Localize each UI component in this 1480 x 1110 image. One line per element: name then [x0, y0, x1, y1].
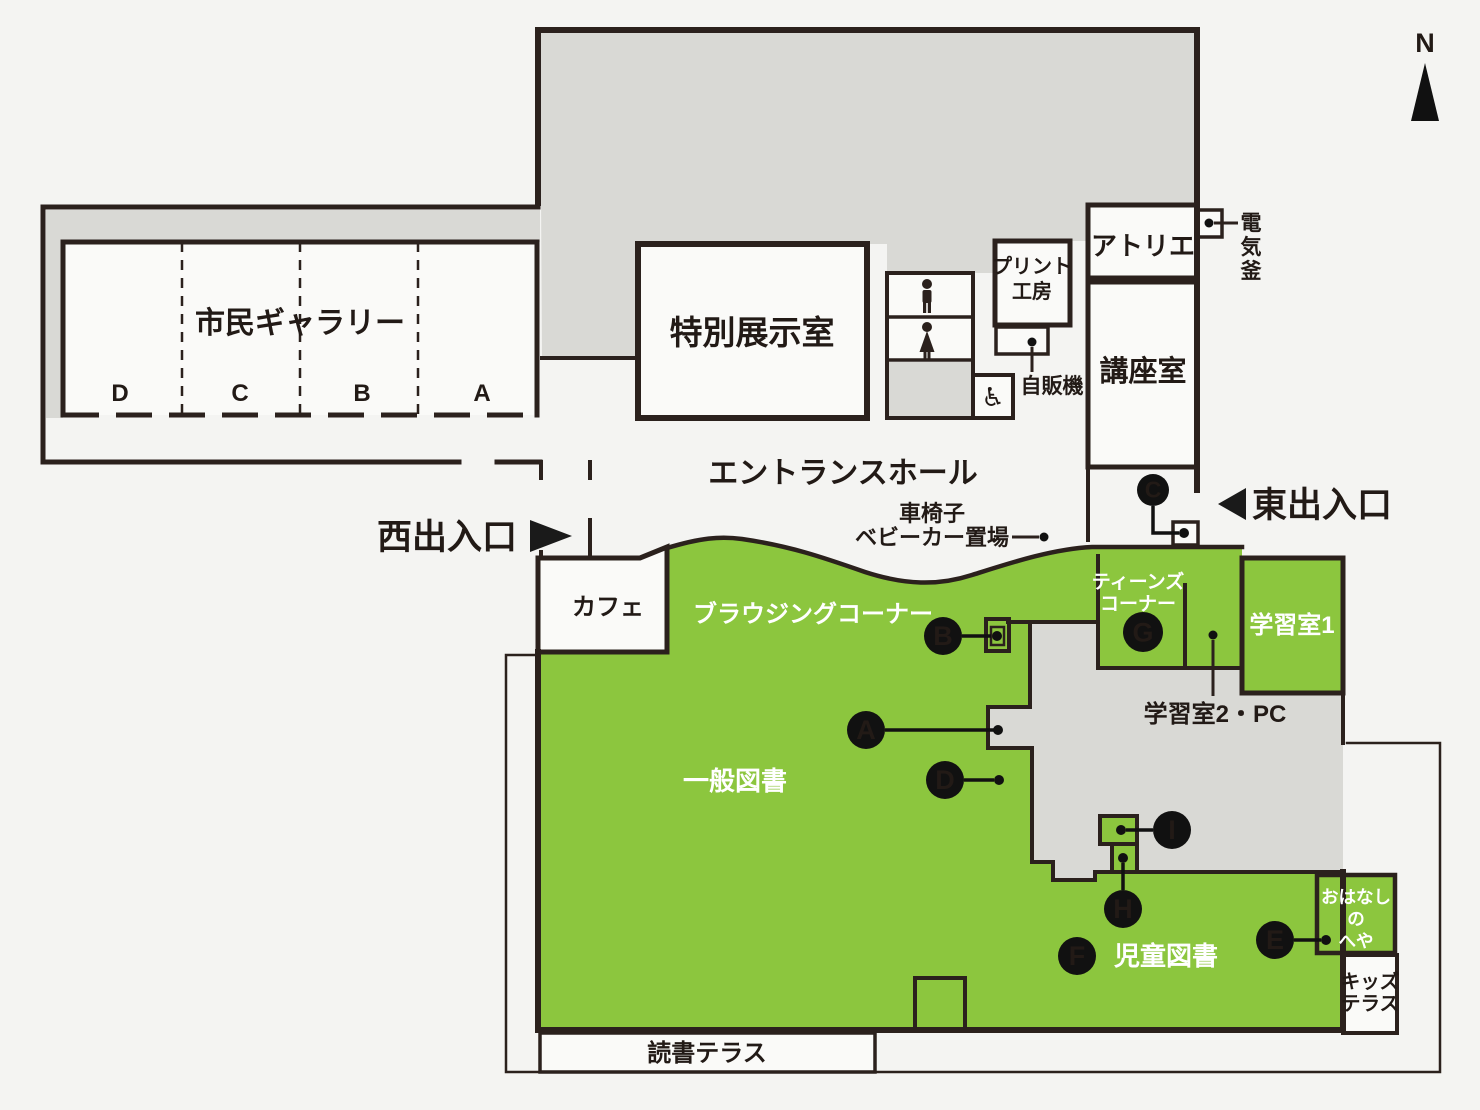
restroom-service-cell: [889, 362, 971, 416]
marker-i-dot: [1116, 825, 1126, 835]
reading-terrace-label: 読書テラス: [647, 1039, 767, 1067]
marker-d-dot: [994, 775, 1004, 785]
gallery-section-c: C: [231, 380, 248, 407]
print-studio-label-2: 工房: [1012, 279, 1052, 303]
cafe-label: カフェ: [572, 594, 644, 621]
gallery-section-b: B: [353, 380, 370, 407]
marker-e-letter: E: [1266, 925, 1284, 955]
marker-i-letter: I: [1168, 815, 1176, 845]
marker-e-dot: [1321, 935, 1331, 945]
gallery-label: 市民ギャラリー: [195, 306, 405, 340]
marker-c-letter: C: [1145, 477, 1162, 503]
wheelchair-icon: ♿: [981, 382, 1004, 412]
teens-label-1: ティーンズ: [1092, 570, 1185, 593]
floor-map: ♿ ABCDEFGHI 市民ギャラ: [0, 0, 1480, 1110]
wheel-storage-label-1: 車椅子: [899, 501, 965, 526]
children-books-label: 児童図書: [1114, 941, 1218, 971]
green-stair-box: [915, 978, 965, 1030]
story-room-label-1: おはなし: [1321, 887, 1391, 907]
compass-label: N: [1415, 28, 1435, 58]
west-entrance-label: 西出入口: [377, 518, 517, 557]
marker-b-letter: B: [933, 621, 953, 651]
study2-label: 学習室2・PC: [1144, 700, 1287, 728]
west-wing-sliver: [46, 242, 63, 418]
study1-label: 学習室1: [1249, 611, 1334, 639]
marker-b-dot: [992, 631, 1002, 641]
vending-box: [996, 327, 1048, 354]
atelier-label: アトリエ: [1091, 231, 1195, 261]
marker-a-letter: A: [856, 715, 876, 745]
vending-label: 自販機: [1021, 374, 1084, 398]
wheel-storage-label-2: ベビーカー置場: [855, 525, 1009, 550]
kiln-label-2: 気: [1241, 235, 1262, 259]
marker-h-letter: H: [1113, 894, 1133, 924]
entrance-hall-label: エントランスホール: [708, 457, 977, 490]
marker-d-letter: D: [935, 765, 955, 795]
gallery-section-a: A: [473, 380, 490, 407]
special-exhibition-label: 特別展示室: [670, 314, 835, 351]
general-books-label: 一般図書: [683, 766, 787, 796]
story-room-label-3: へや: [1339, 931, 1374, 951]
west-wing-band: [46, 210, 540, 242]
east-entrance-label: 東出入口: [1252, 486, 1392, 525]
print-studio-label-1: プリント: [992, 255, 1072, 278]
marker-g: G: [1123, 612, 1163, 652]
kiln-label-1: 電: [1241, 212, 1262, 235]
kids-terrace-label-1: キッズ: [1341, 970, 1400, 993]
story-room-label-2: の: [1347, 909, 1365, 929]
marker-f-letter: F: [1069, 941, 1086, 971]
marker-f: F: [1058, 937, 1096, 975]
kids-terrace-label-2: テラス: [1341, 993, 1399, 1015]
browsing-label: ブラウジングコーナー: [693, 600, 933, 628]
marker-g-letter: G: [1132, 618, 1153, 648]
marker-a-dot: [993, 725, 1003, 735]
teens-label-2: コーナー: [1100, 594, 1176, 615]
kiln-label-3: 釜: [1240, 259, 1263, 283]
lecture-label: 講座室: [1099, 354, 1186, 388]
marker-c-dot: [1179, 528, 1189, 538]
floor-map-svg: ♿ ABCDEFGHI 市民ギャラ: [0, 0, 1480, 1110]
marker-h-dot: [1118, 853, 1128, 863]
gallery-section-d: D: [111, 380, 128, 407]
